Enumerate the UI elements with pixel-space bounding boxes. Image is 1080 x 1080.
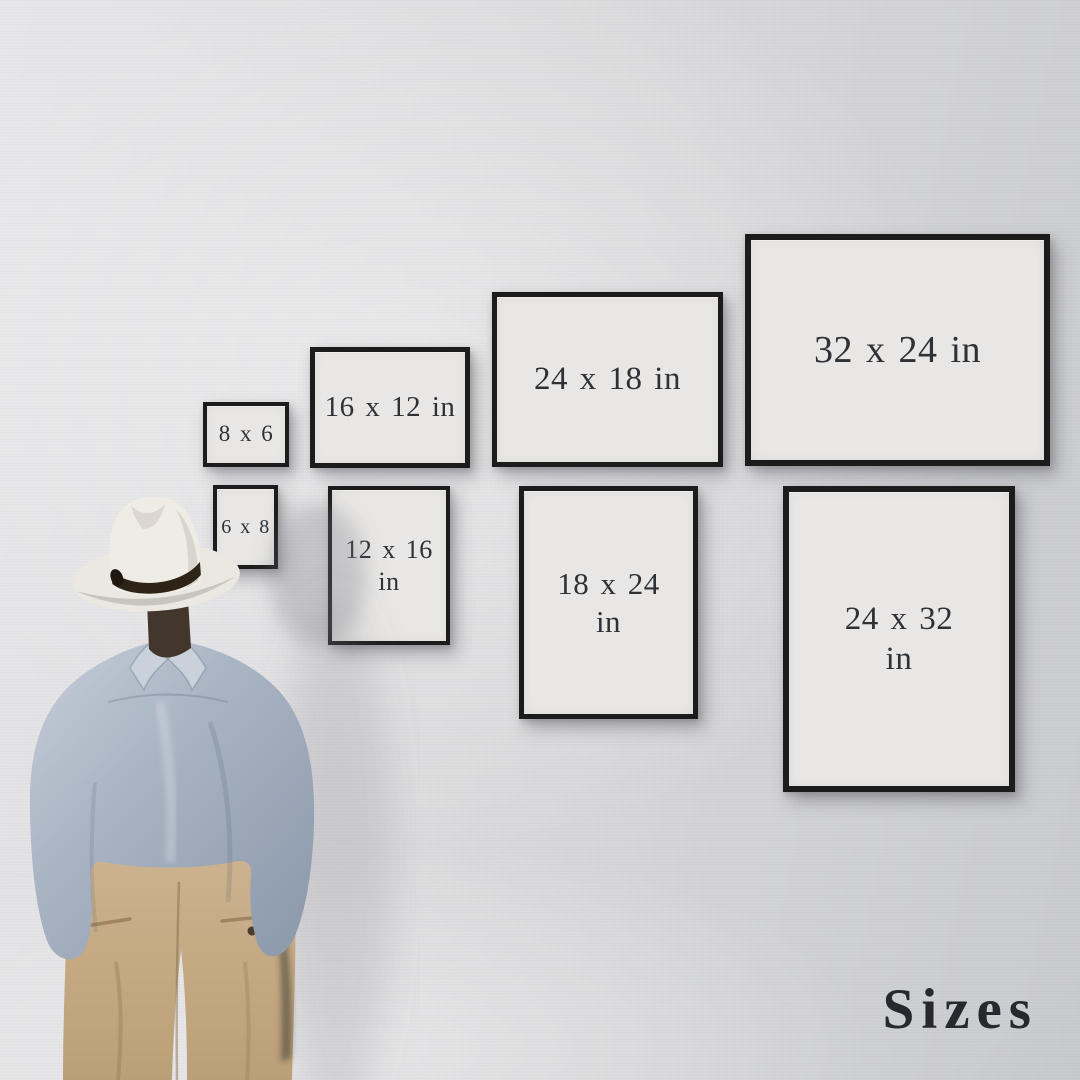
shirt <box>30 612 314 959</box>
frame-6x8: 6 x 8 <box>213 485 278 569</box>
frame-18x24: 18 x 24 in <box>519 486 698 719</box>
trousers <box>63 855 295 1080</box>
frame-12x16: 12 x 16 in <box>328 486 450 645</box>
frame-size-label: 18 x 24 in <box>557 565 660 641</box>
frame-size-label: 8 x 6 <box>219 420 274 448</box>
frame-size-label: 16 x 12 in <box>325 390 456 425</box>
frame-size-label: 24 x 32 in <box>845 599 954 680</box>
frame-size-label: 24 x 18 in <box>534 359 681 399</box>
frame-size-label: 32 x 24 in <box>814 327 981 373</box>
frame-8x6: 8 x 6 <box>203 402 289 467</box>
frame-size-label: 6 x 8 <box>221 515 270 539</box>
frame-size-label: 12 x 16 in <box>345 534 433 597</box>
frame-24x18: 24 x 18 in <box>492 292 723 467</box>
hair <box>147 599 191 658</box>
frame-16x12: 16 x 12 in <box>310 347 470 468</box>
frame-32x24: 32 x 24 in <box>745 234 1050 466</box>
frame-24x32: 24 x 32 in <box>783 486 1015 792</box>
frame-sizes-mockup: 8 x 6 16 x 12 in 24 x 18 in 32 x 24 in 6… <box>0 0 1080 1080</box>
sizes-caption: Sizes <box>883 977 1038 1042</box>
